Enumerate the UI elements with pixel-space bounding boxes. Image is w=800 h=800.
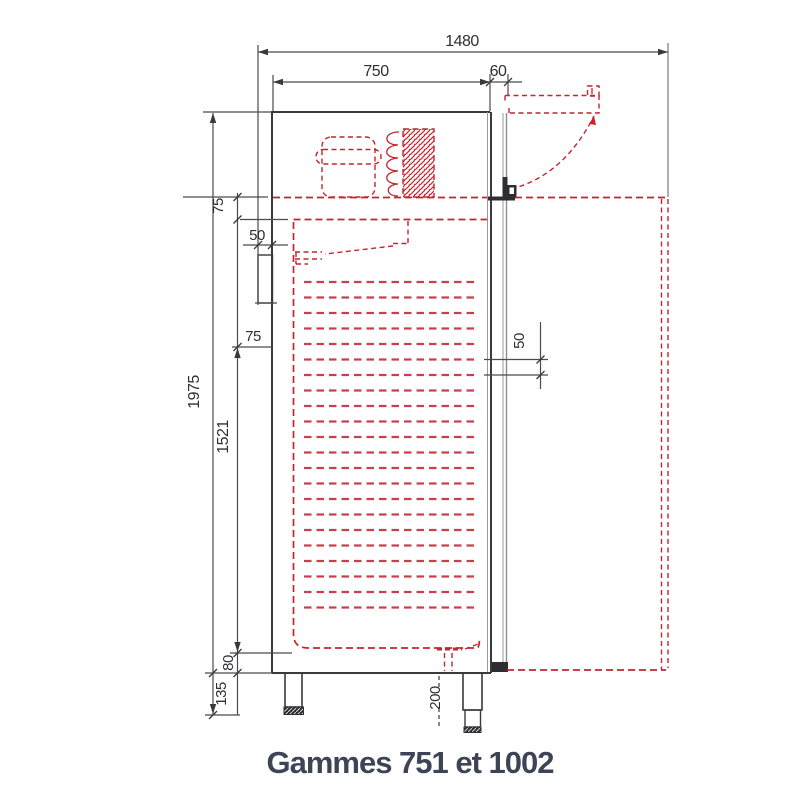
dim-label-80: 80 [220,655,237,671]
front-foot [463,673,482,733]
dim-label-75-mid: 75 [245,328,261,345]
drawing-caption: Gammes 751 et 1002 [266,745,553,780]
dimension-200: 200 [427,676,444,726]
dim-label-750: 750 [363,63,389,80]
dimension-50-rear: 50 [243,227,288,249]
technical-drawing-page: 1480 750 60 1975 75 50 [0,0,800,800]
swing-arc-arrowhead [589,116,596,125]
cabinet-outline [203,112,491,673]
dim-label-75-top: 75 [210,198,227,214]
dimension-60: 60 [486,63,522,95]
front-grille-open-position [505,86,599,187]
rear-foot [284,673,304,715]
coil-tube-squiggle [387,132,399,196]
door-hinge-bracket [488,177,517,201]
dim-label-50-rear: 50 [249,227,265,244]
dim-label-50-shelf: 50 [511,333,528,349]
condenser-coil [387,129,434,197]
dimension-1480: 1480 [258,33,668,305]
dim-label-1521: 1521 [215,420,232,454]
shelf-runner-lines [304,282,477,608]
dim-label-1975: 1975 [186,375,203,409]
interior-liner [294,220,488,649]
compressor [316,137,381,197]
dim-label-60: 60 [490,63,507,80]
door-open-envelope [507,198,668,671]
dimension-1521: 1521 [215,348,241,652]
dimension-750: 750 [273,63,490,111]
flap-swing-arc [520,116,595,187]
dim-label-1480: 1480 [445,33,479,50]
door-bottom-seal [492,662,508,672]
dim-label-135: 135 [213,682,230,706]
dimension-50-shelf: 50 [484,322,548,389]
dim-label-200: 200 [427,686,444,710]
dimension-75-mid: 75 [232,328,273,351]
refrigerator-side-section-diagram: 1480 750 60 1975 75 50 [0,0,800,800]
